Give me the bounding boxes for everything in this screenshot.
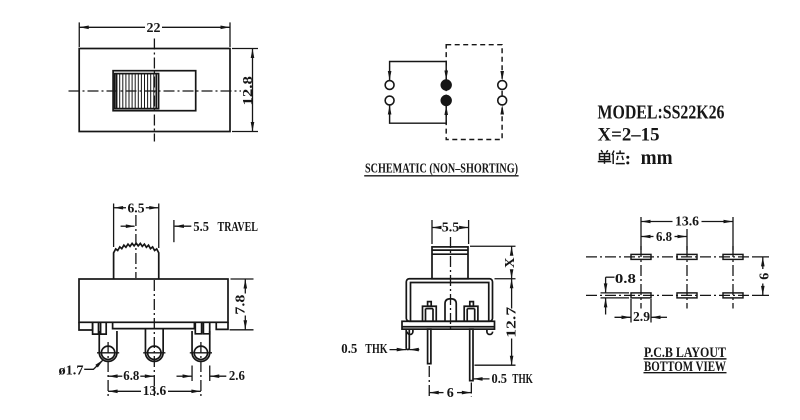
svg-text:SCHEMATIC (NON–SHORTING): SCHEMATIC (NON–SHORTING) <box>365 161 518 176</box>
svg-text:0.5: 0.5 <box>341 342 357 357</box>
svg-text:12.8: 12.8 <box>241 76 256 106</box>
svg-text:2.9: 2.9 <box>633 310 650 325</box>
svg-text:X: X <box>503 258 518 269</box>
svg-text:13.6: 13.6 <box>675 214 699 229</box>
svg-text:7.8: 7.8 <box>233 295 248 315</box>
svg-text:13.6: 13.6 <box>143 384 167 399</box>
svg-text:12.7: 12.7 <box>505 307 520 338</box>
svg-text:TRAVEL: TRAVEL <box>218 220 259 235</box>
svg-text:5.5: 5.5 <box>193 220 209 235</box>
svg-text:5.5: 5.5 <box>442 220 460 235</box>
svg-text:6.5: 6.5 <box>128 202 145 217</box>
svg-text:2.6: 2.6 <box>229 369 245 384</box>
svg-text:6.8: 6.8 <box>123 369 139 384</box>
svg-text:mm: mm <box>641 147 673 169</box>
svg-text:THK: THK <box>512 372 533 387</box>
svg-text:6.8: 6.8 <box>656 230 672 245</box>
svg-text:X=2–15: X=2–15 <box>598 124 660 145</box>
svg-text:MODEL:SS22K26: MODEL:SS22K26 <box>598 102 725 124</box>
svg-text:22: 22 <box>147 21 161 36</box>
svg-text:6: 6 <box>757 273 772 280</box>
svg-text:ø1.7: ø1.7 <box>59 364 84 379</box>
svg-text:THK: THK <box>365 342 387 357</box>
svg-text:6: 6 <box>447 386 454 401</box>
svg-text:0.5: 0.5 <box>492 372 508 387</box>
svg-text:0.8: 0.8 <box>615 272 636 287</box>
